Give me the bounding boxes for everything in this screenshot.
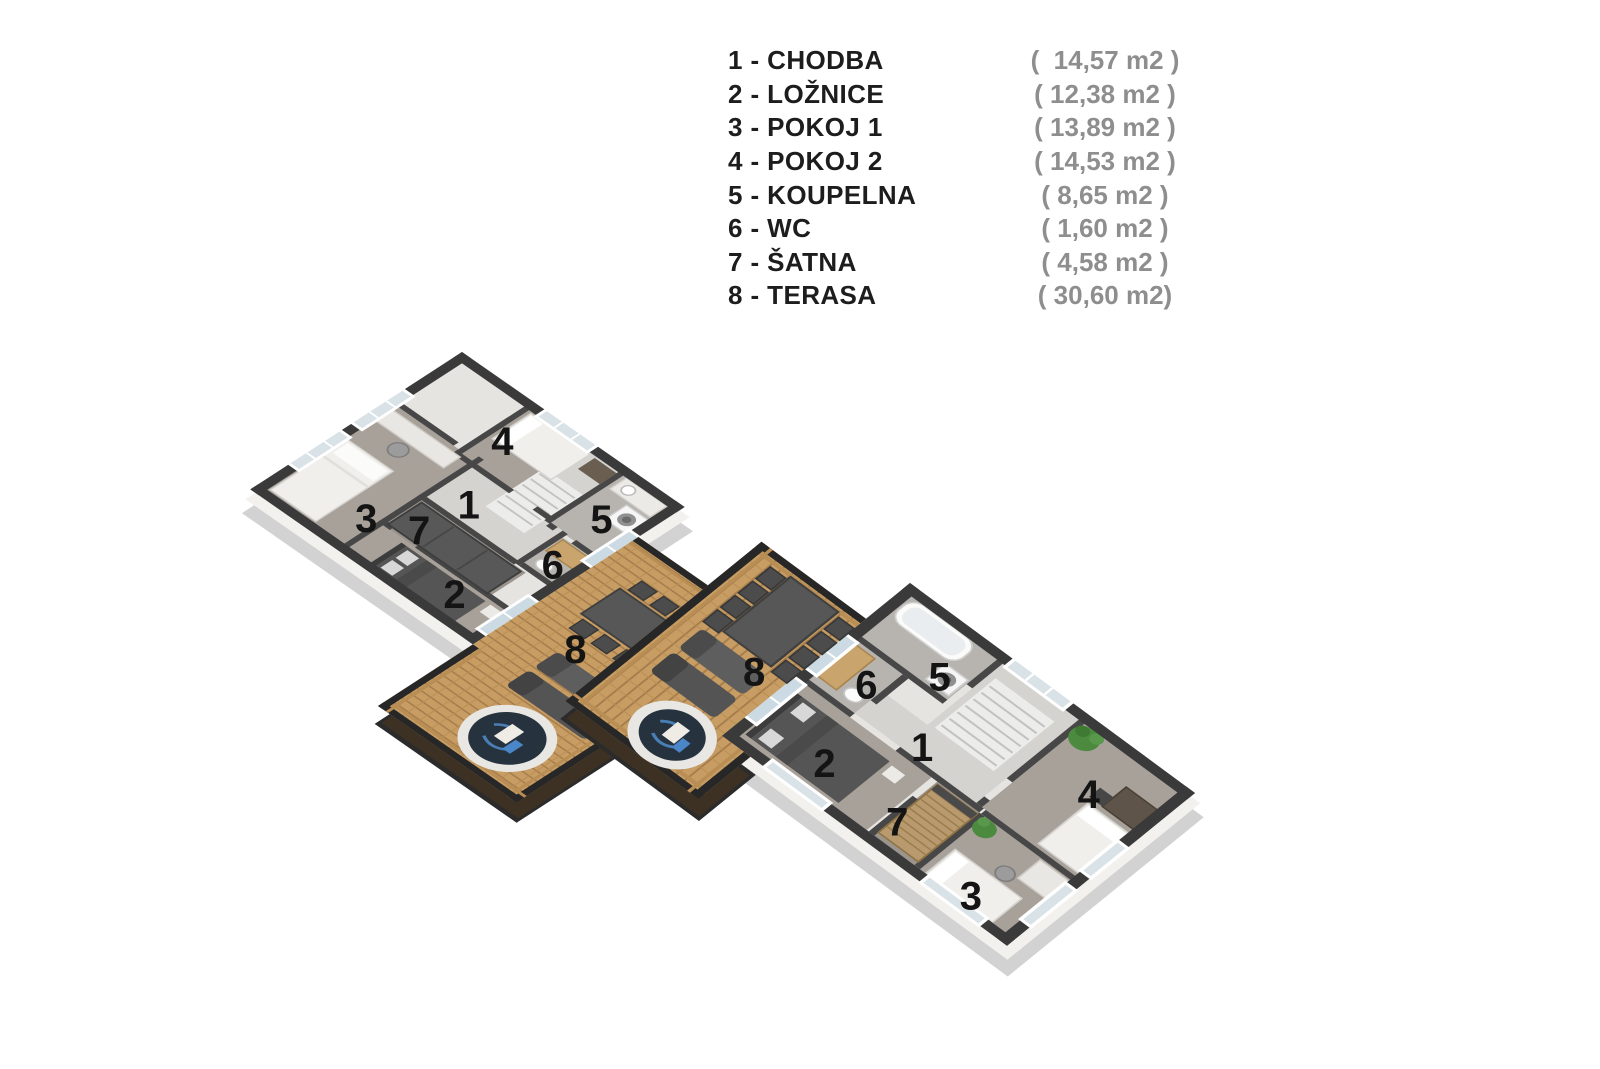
floor-plan-image: 1234567812345678 1 - CHODBA( 14,57 m2 )2… [0,0,1600,1069]
room-2-number-right: 2 [813,742,835,786]
legend-room-area: ( 1,60 m2 ) [1010,213,1200,244]
legend-room-label: 5 - KOUPELNA [728,180,1010,211]
legend-row: 7 - ŠATNA( 4,58 m2 ) [728,246,1200,280]
room-7-number-left: 7 [408,509,430,553]
legend-row: 8 - TERASA( 30,60 m2) [728,279,1200,313]
legend-room-label: 7 - ŠATNA [728,247,1010,278]
legend-room-label: 8 - TERASA [728,280,1010,311]
legend-row: 1 - CHODBA( 14,57 m2 ) [728,44,1200,78]
legend-row: 5 - KOUPELNA( 8,65 m2 ) [728,178,1200,212]
room-1-number-right: 1 [911,726,933,770]
legend-room-area: ( 12,38 m2 ) [1010,79,1200,110]
room-5-number-right: 5 [928,656,950,700]
room-3-number-left: 3 [355,497,377,541]
legend-room-label: 6 - WC [728,213,1010,244]
legend-row: 6 - WC( 1,60 m2 ) [728,212,1200,246]
room-8-number-left: 8 [564,628,586,672]
legend-room-area: ( 13,89 m2 ) [1010,112,1200,143]
room-6-number-left: 6 [542,543,564,587]
legend-row: 2 - LOŽNICE( 12,38 m2 ) [728,78,1200,112]
room-8-number-right: 8 [743,650,765,694]
legend: 1 - CHODBA( 14,57 m2 )2 - LOŽNICE( 12,38… [728,44,1200,313]
legend-room-label: 3 - POKOJ 1 [728,112,1010,143]
room-5-number-left: 5 [590,498,612,542]
legend-room-label: 4 - POKOJ 2 [728,146,1010,177]
legend-room-area: ( 14,53 m2 ) [1010,146,1200,177]
room-3-number-right: 3 [960,875,982,919]
legend-room-area: ( 4,58 m2 ) [1010,247,1200,278]
room-7-number-right: 7 [886,801,908,845]
room-4-number-left: 4 [491,420,514,464]
room-6-number-right: 6 [855,664,877,708]
room-2-number-left: 2 [443,573,465,617]
legend-room-label: 1 - CHODBA [728,45,1010,76]
room-1-number-left: 1 [458,484,480,528]
legend-row: 4 - POKOJ 2( 14,53 m2 ) [728,145,1200,179]
legend-room-area: ( 14,57 m2 ) [1010,45,1200,76]
legend-room-area: ( 30,60 m2) [1010,280,1200,311]
legend-room-area: ( 8,65 m2 ) [1010,180,1200,211]
legend-row: 3 - POKOJ 1( 13,89 m2 ) [728,111,1200,145]
room-4-number-right: 4 [1078,773,1101,817]
legend-room-label: 2 - LOŽNICE [728,79,1010,110]
